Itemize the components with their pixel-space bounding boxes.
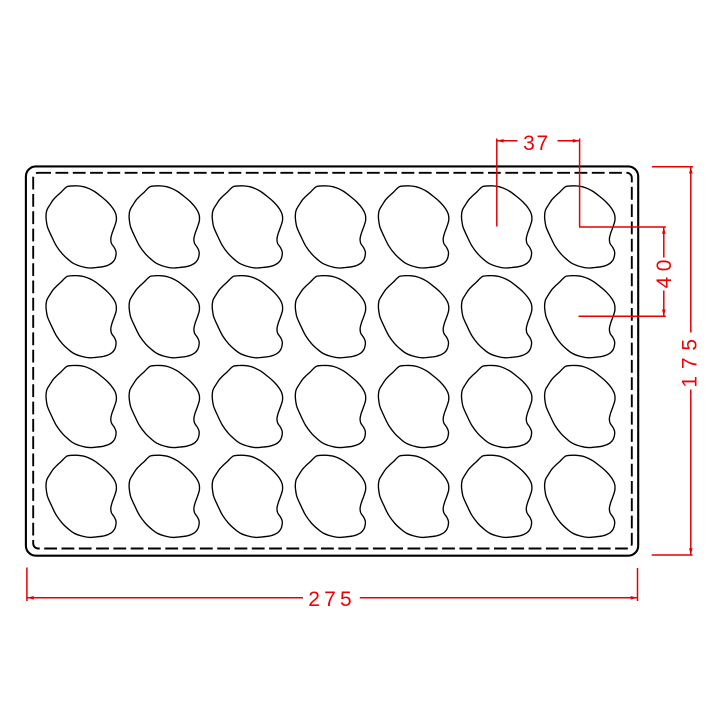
svg-text:40: 40 (653, 254, 676, 288)
svg-text:275: 275 (308, 588, 356, 611)
svg-text:37: 37 (523, 132, 550, 155)
svg-text:175: 175 (679, 332, 702, 387)
